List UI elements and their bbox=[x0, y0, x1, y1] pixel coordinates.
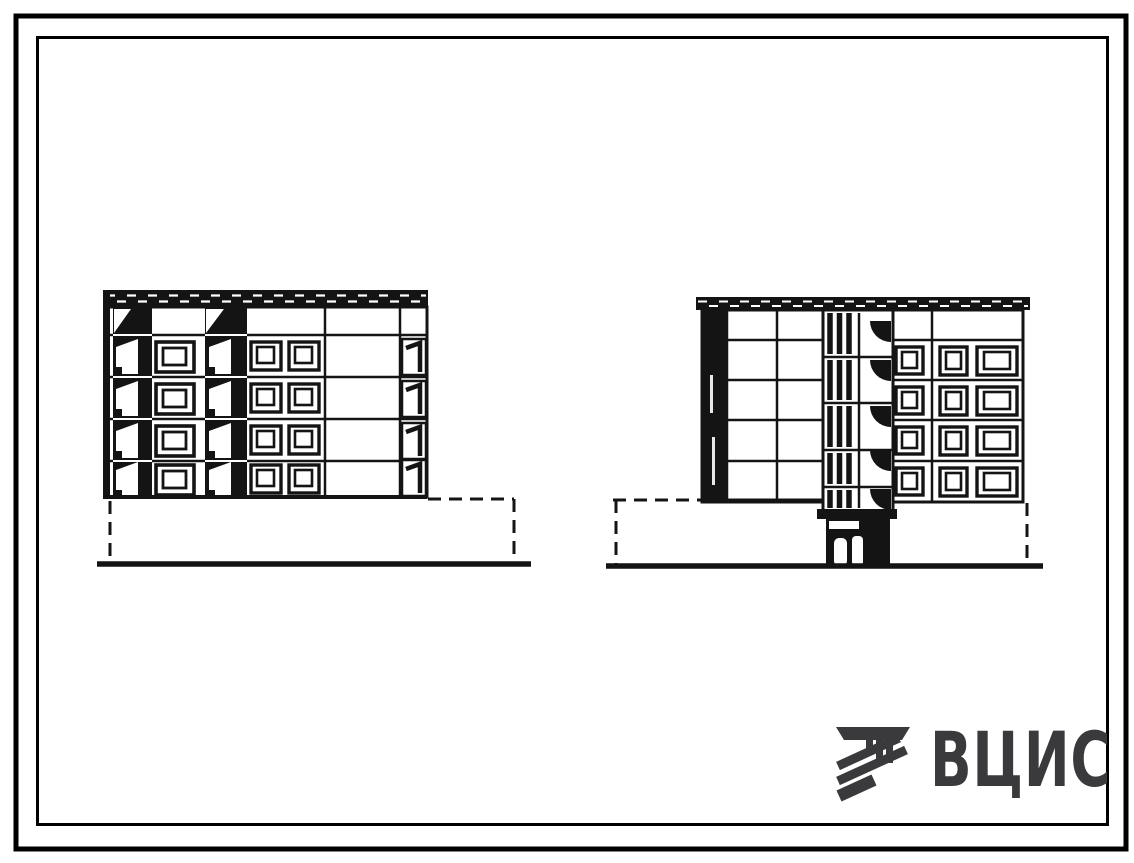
hatched-construction-mark-icon bbox=[836, 727, 910, 796]
window bbox=[977, 468, 1017, 496]
balcony-stack-2 bbox=[205, 307, 247, 497]
roof-band bbox=[104, 290, 428, 307]
loggia-window bbox=[402, 423, 426, 459]
window bbox=[251, 342, 281, 370]
window bbox=[156, 342, 194, 372]
window bbox=[940, 468, 967, 496]
window bbox=[156, 465, 194, 495]
loggia-window bbox=[402, 339, 426, 375]
window bbox=[156, 426, 194, 456]
window bbox=[977, 387, 1017, 415]
shaded-end-strip bbox=[703, 310, 727, 500]
roof-band bbox=[696, 297, 1030, 310]
entrance-door bbox=[852, 536, 863, 566]
window bbox=[251, 426, 281, 454]
basement-dashed-outline bbox=[110, 499, 514, 561]
window-section bbox=[893, 310, 1023, 502]
entrance-canopy bbox=[817, 509, 897, 519]
loggia-window bbox=[402, 381, 426, 417]
stairwell bbox=[823, 310, 893, 512]
window bbox=[156, 384, 194, 414]
window bbox=[940, 387, 967, 415]
loggia-window bbox=[402, 460, 426, 496]
window bbox=[977, 427, 1017, 455]
window bbox=[977, 347, 1017, 375]
logo: ВЦИС bbox=[836, 716, 1111, 804]
window bbox=[251, 465, 281, 493]
window bbox=[896, 387, 923, 414]
right-elevation-drawing bbox=[606, 297, 1043, 566]
entrance bbox=[817, 509, 897, 566]
window bbox=[289, 342, 319, 370]
architectural-drawing: ВЦИС bbox=[0, 0, 1134, 863]
logo-text: ВЦИС bbox=[930, 716, 1111, 804]
window bbox=[896, 427, 923, 454]
window bbox=[289, 426, 319, 454]
loggia-stack bbox=[402, 339, 426, 496]
window bbox=[896, 468, 923, 495]
drawing-sheet: ВЦИС bbox=[0, 0, 1134, 863]
window bbox=[940, 427, 967, 455]
window bbox=[251, 384, 281, 412]
window bbox=[289, 384, 319, 412]
balcony-stack-1 bbox=[113, 307, 152, 497]
window bbox=[289, 465, 319, 493]
entrance-door bbox=[834, 538, 847, 566]
window bbox=[940, 347, 967, 375]
corner-edge bbox=[103, 290, 110, 497]
left-elevation-drawing bbox=[97, 290, 531, 564]
window bbox=[896, 347, 923, 374]
